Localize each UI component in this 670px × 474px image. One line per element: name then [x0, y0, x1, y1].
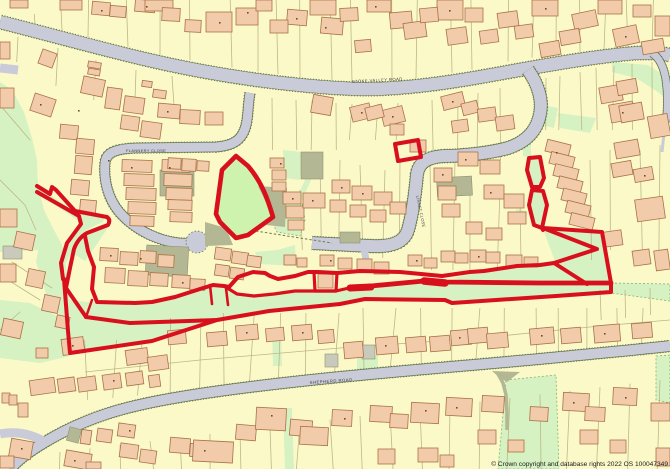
svg-text:© Crown copyright and database: © Crown copyright and database rights 20…	[491, 460, 668, 468]
svg-text:FLANNERY CLOSE: FLANNERY CLOSE	[126, 148, 166, 153]
